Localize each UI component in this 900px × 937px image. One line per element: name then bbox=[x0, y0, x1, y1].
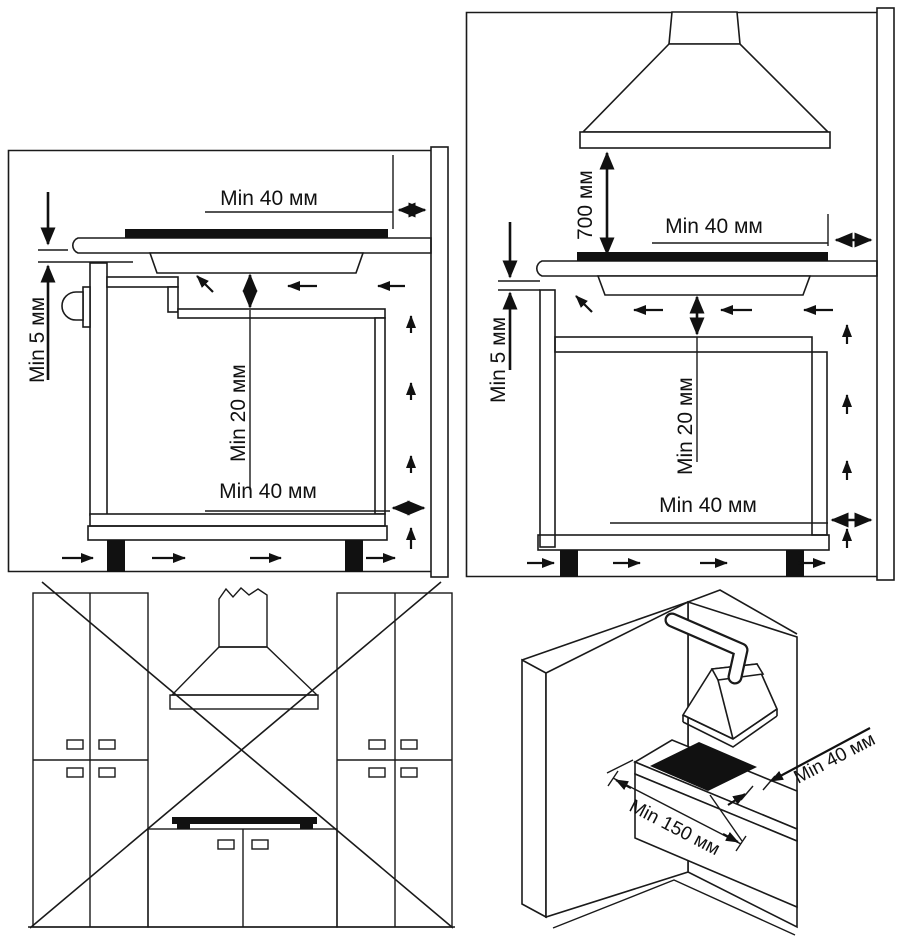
tall-cabinet-right bbox=[337, 593, 452, 927]
cabinet-foot bbox=[107, 540, 125, 572]
cross-out-mark bbox=[30, 582, 453, 928]
door-handle bbox=[67, 740, 83, 749]
dim-label: Min 40 мм bbox=[219, 480, 317, 503]
dim-rear-clearance: Min 40 мм bbox=[610, 494, 871, 523]
hob-panel bbox=[577, 252, 828, 261]
installation-diagram: Min 40 мм Min 5 мм Min 20 мм Min 40 мм bbox=[0, 0, 900, 937]
fixing-bracket bbox=[83, 287, 90, 327]
door-handle bbox=[218, 840, 234, 849]
panel-front-view-incorrect bbox=[28, 582, 455, 928]
worktop bbox=[537, 261, 877, 276]
door-handle bbox=[99, 768, 115, 777]
door-handle bbox=[369, 740, 385, 749]
dim-under-clearance: Min 20 мм bbox=[227, 275, 250, 490]
door-handle bbox=[99, 740, 115, 749]
dim-label: Min 5 мм bbox=[487, 317, 510, 403]
panel-side-view: Min 40 мм Min 5 мм Min 20 мм Min 40 мм bbox=[9, 147, 449, 577]
panel-hood-view: 700 мм Min 40 мм Min 5 мм bbox=[467, 8, 895, 580]
dim-top-clearance: Min 40 мм bbox=[205, 155, 425, 229]
cabinet-foot bbox=[560, 550, 578, 577]
brick-wall bbox=[431, 147, 448, 577]
dim-label: Min 40 мм bbox=[665, 215, 763, 238]
hood-cone bbox=[583, 44, 828, 132]
dim-rear-clearance: Min 40 мм bbox=[205, 480, 424, 511]
dim-under-clearance: Min 20 мм bbox=[674, 297, 697, 475]
dim-label: Min 40 мм bbox=[659, 494, 757, 517]
dim-hood-height: 700 мм bbox=[574, 153, 607, 254]
room-outline bbox=[9, 151, 432, 572]
dim-label: Min 20 мм bbox=[674, 377, 697, 475]
hob-panel bbox=[172, 817, 317, 824]
hob-recess bbox=[598, 276, 810, 295]
dim-label: Min 40 мм bbox=[220, 187, 318, 210]
hob-panel bbox=[125, 229, 388, 238]
hood-brim bbox=[580, 132, 830, 148]
fixing-bolt bbox=[62, 292, 83, 320]
cabinet bbox=[62, 263, 387, 572]
door-handle bbox=[401, 740, 417, 749]
dim-edge-gap: Min 5 мм bbox=[487, 222, 540, 403]
dim-label: 700 мм bbox=[574, 170, 597, 240]
hood-cone bbox=[172, 647, 317, 695]
hob-recess bbox=[150, 253, 363, 273]
dim-label: Min 20 мм bbox=[227, 364, 250, 462]
door-handle bbox=[252, 840, 268, 849]
hood-chimney bbox=[669, 12, 740, 44]
cooker-hood bbox=[170, 588, 318, 709]
door-handle bbox=[369, 768, 385, 777]
door-handle bbox=[401, 768, 417, 777]
door-handle bbox=[67, 768, 83, 777]
hood-brim bbox=[170, 695, 318, 709]
cabinet-foot bbox=[345, 540, 363, 572]
hood-duct-torn bbox=[219, 588, 267, 647]
worktop bbox=[73, 238, 431, 253]
manual-page: Min 40 мм Min 5 мм Min 20 мм Min 40 мм bbox=[0, 0, 900, 937]
base-cabinet bbox=[148, 817, 337, 927]
dim-label: Min 5 мм bbox=[26, 297, 49, 383]
dim-label: Min 40 мм bbox=[791, 729, 879, 788]
dim-top-clearance: Min 40 мм bbox=[652, 214, 871, 246]
cooker-hood bbox=[580, 12, 830, 148]
panel-corner-view: Min 40 мм Min 150 мм bbox=[522, 590, 879, 935]
brick-wall bbox=[877, 8, 894, 580]
